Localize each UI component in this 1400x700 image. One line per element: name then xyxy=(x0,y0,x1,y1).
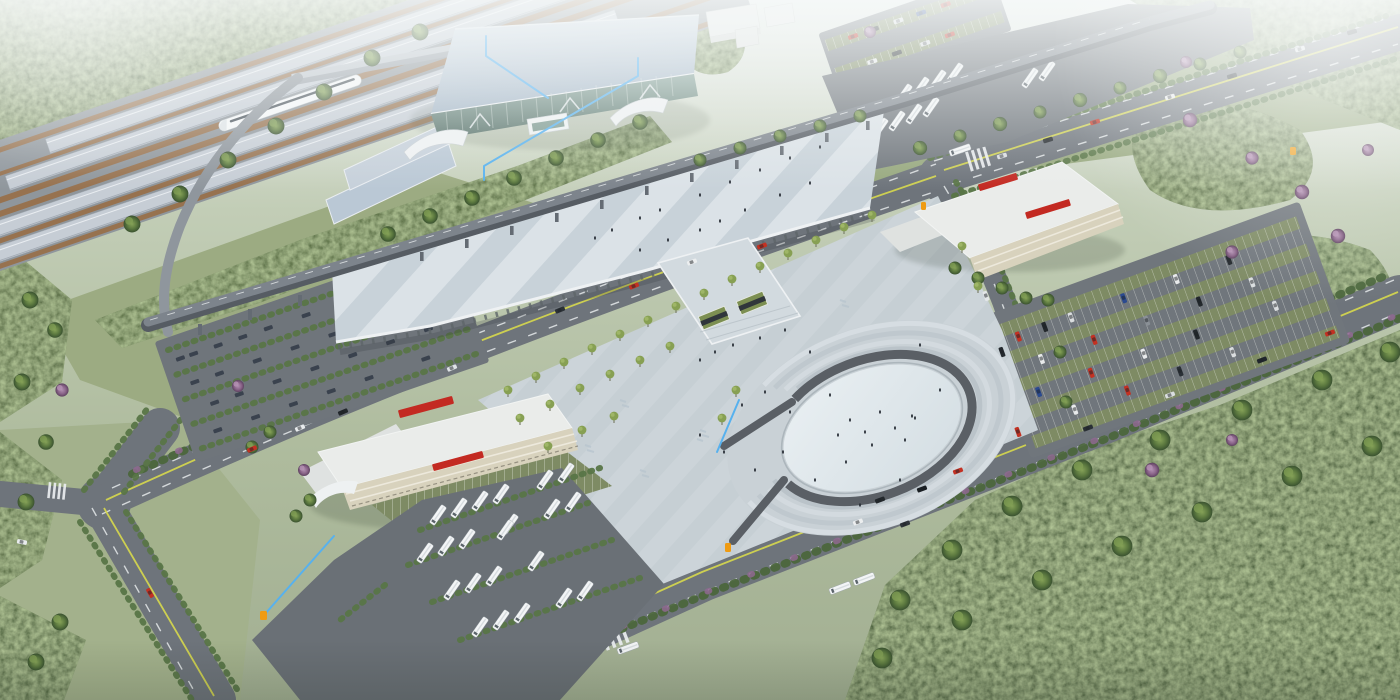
bottom-vignette xyxy=(0,640,1400,700)
aerial-render: Bird's-eye 3D architectural rendering of… xyxy=(0,0,1400,700)
